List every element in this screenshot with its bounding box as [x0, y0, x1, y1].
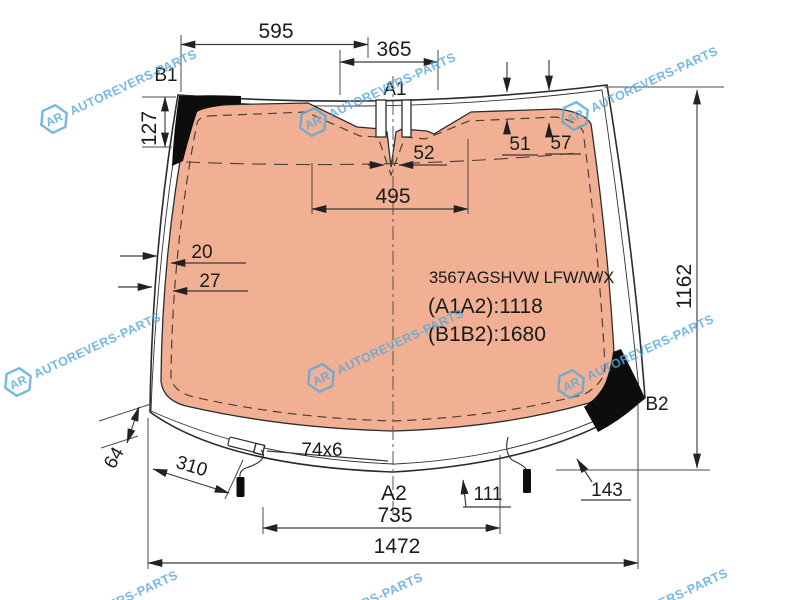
- dim-310: 310: [153, 452, 243, 499]
- dim-1472-value: 1472: [374, 535, 421, 558]
- dim-127-value: 127: [138, 111, 161, 146]
- marker-a2-label: A2: [381, 482, 407, 505]
- brand-watermark: AR AUTOREVERS-PARTS: [262, 565, 427, 600]
- dim-52-value: 52: [413, 143, 434, 164]
- brand-watermark-text: AUTOREVERS-PARTS: [589, 44, 721, 115]
- locating-pin-left: [237, 477, 245, 497]
- part-code: 3567AGSHVW LFW/W/X: [429, 269, 614, 287]
- mirror-bracket-right: [402, 100, 411, 137]
- brand-watermark-text: AUTOREVERS-PARTS: [32, 310, 164, 381]
- brand-watermark: AR AUTOREVERS-PARTS: [0, 305, 165, 399]
- dim-143: 143: [577, 459, 631, 501]
- diagram-canvas: 595 365 B1 A1 B2 A2 127 52 51: [0, 0, 799, 600]
- brand-watermark: AR AUTOREVERS-PARTS: [567, 561, 732, 600]
- dim-64-value: 64: [100, 443, 129, 472]
- dim-1162-value: 1162: [673, 264, 696, 309]
- locating-pin-right: [523, 469, 531, 493]
- dim-111: 111: [463, 480, 511, 507]
- tinted-glass-area: [161, 103, 615, 431]
- mirror-bracket-left: [376, 100, 386, 137]
- dim-735-value: 735: [377, 504, 412, 527]
- dim-111-value: 111: [474, 484, 503, 505]
- brand-watermark-text: AUTOREVERS-PARTS: [599, 566, 731, 600]
- dim-595-value: 595: [258, 20, 293, 43]
- dim-495-value: 495: [375, 185, 410, 208]
- dim-57-value: 57: [550, 133, 571, 154]
- brand-watermark-text: AUTOREVERS-PARTS: [294, 570, 426, 600]
- brand-watermark: AR AUTOREVERS-PARTS: [17, 563, 182, 600]
- dim-27-value: 27: [199, 271, 220, 292]
- dim-365-value: 365: [376, 38, 411, 61]
- brand-watermark-text: AUTOREVERS-PARTS: [49, 568, 181, 600]
- ar-logo-text: AR: [7, 372, 29, 392]
- windshield-diagram: 595 365 B1 A1 B2 A2 127 52 51: [0, 0, 799, 600]
- dim-74x6-value: 74x6: [301, 440, 342, 461]
- ar-logo-text: AR: [43, 109, 65, 129]
- dim-20-value: 20: [191, 242, 212, 263]
- dim-51-value: 51: [509, 134, 530, 155]
- marker-b2-label: B2: [645, 394, 668, 415]
- dim-64: 64: [99, 404, 151, 473]
- dim-143-value: 143: [591, 480, 623, 501]
